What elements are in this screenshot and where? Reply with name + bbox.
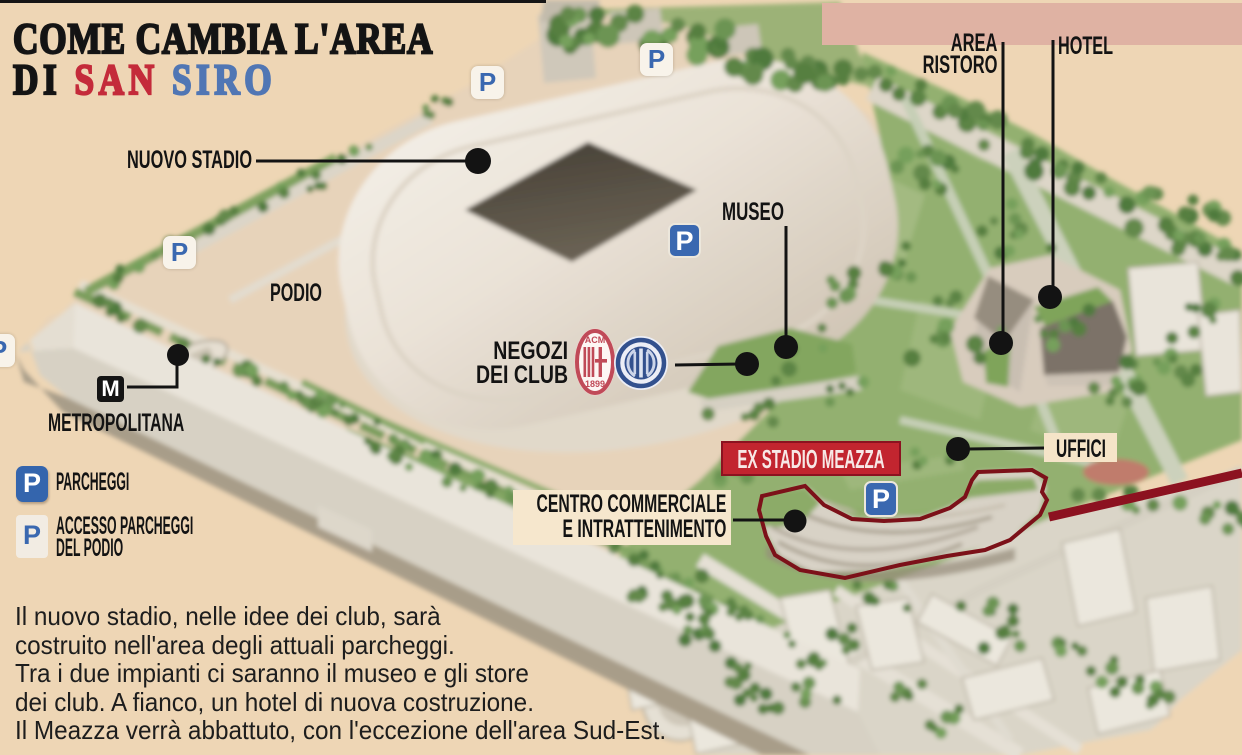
svg-text:ACM: ACM: [585, 335, 606, 345]
svg-text:1899: 1899: [585, 379, 605, 389]
